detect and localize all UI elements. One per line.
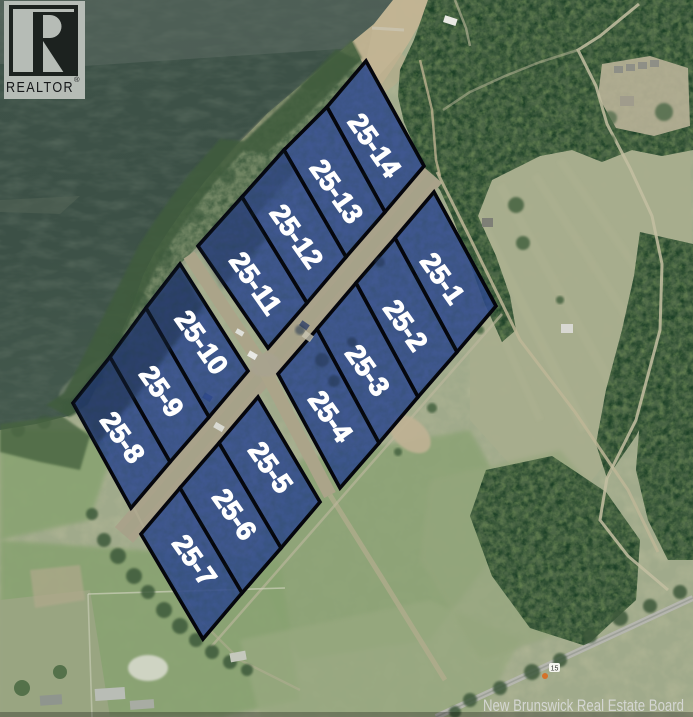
svg-text:New Brunswick Real Estate Boar: New Brunswick Real Estate Board xyxy=(483,697,684,715)
svg-text:15: 15 xyxy=(551,666,559,673)
svg-text:REALTOR: REALTOR xyxy=(6,80,74,96)
svg-text:®: ® xyxy=(74,75,80,84)
